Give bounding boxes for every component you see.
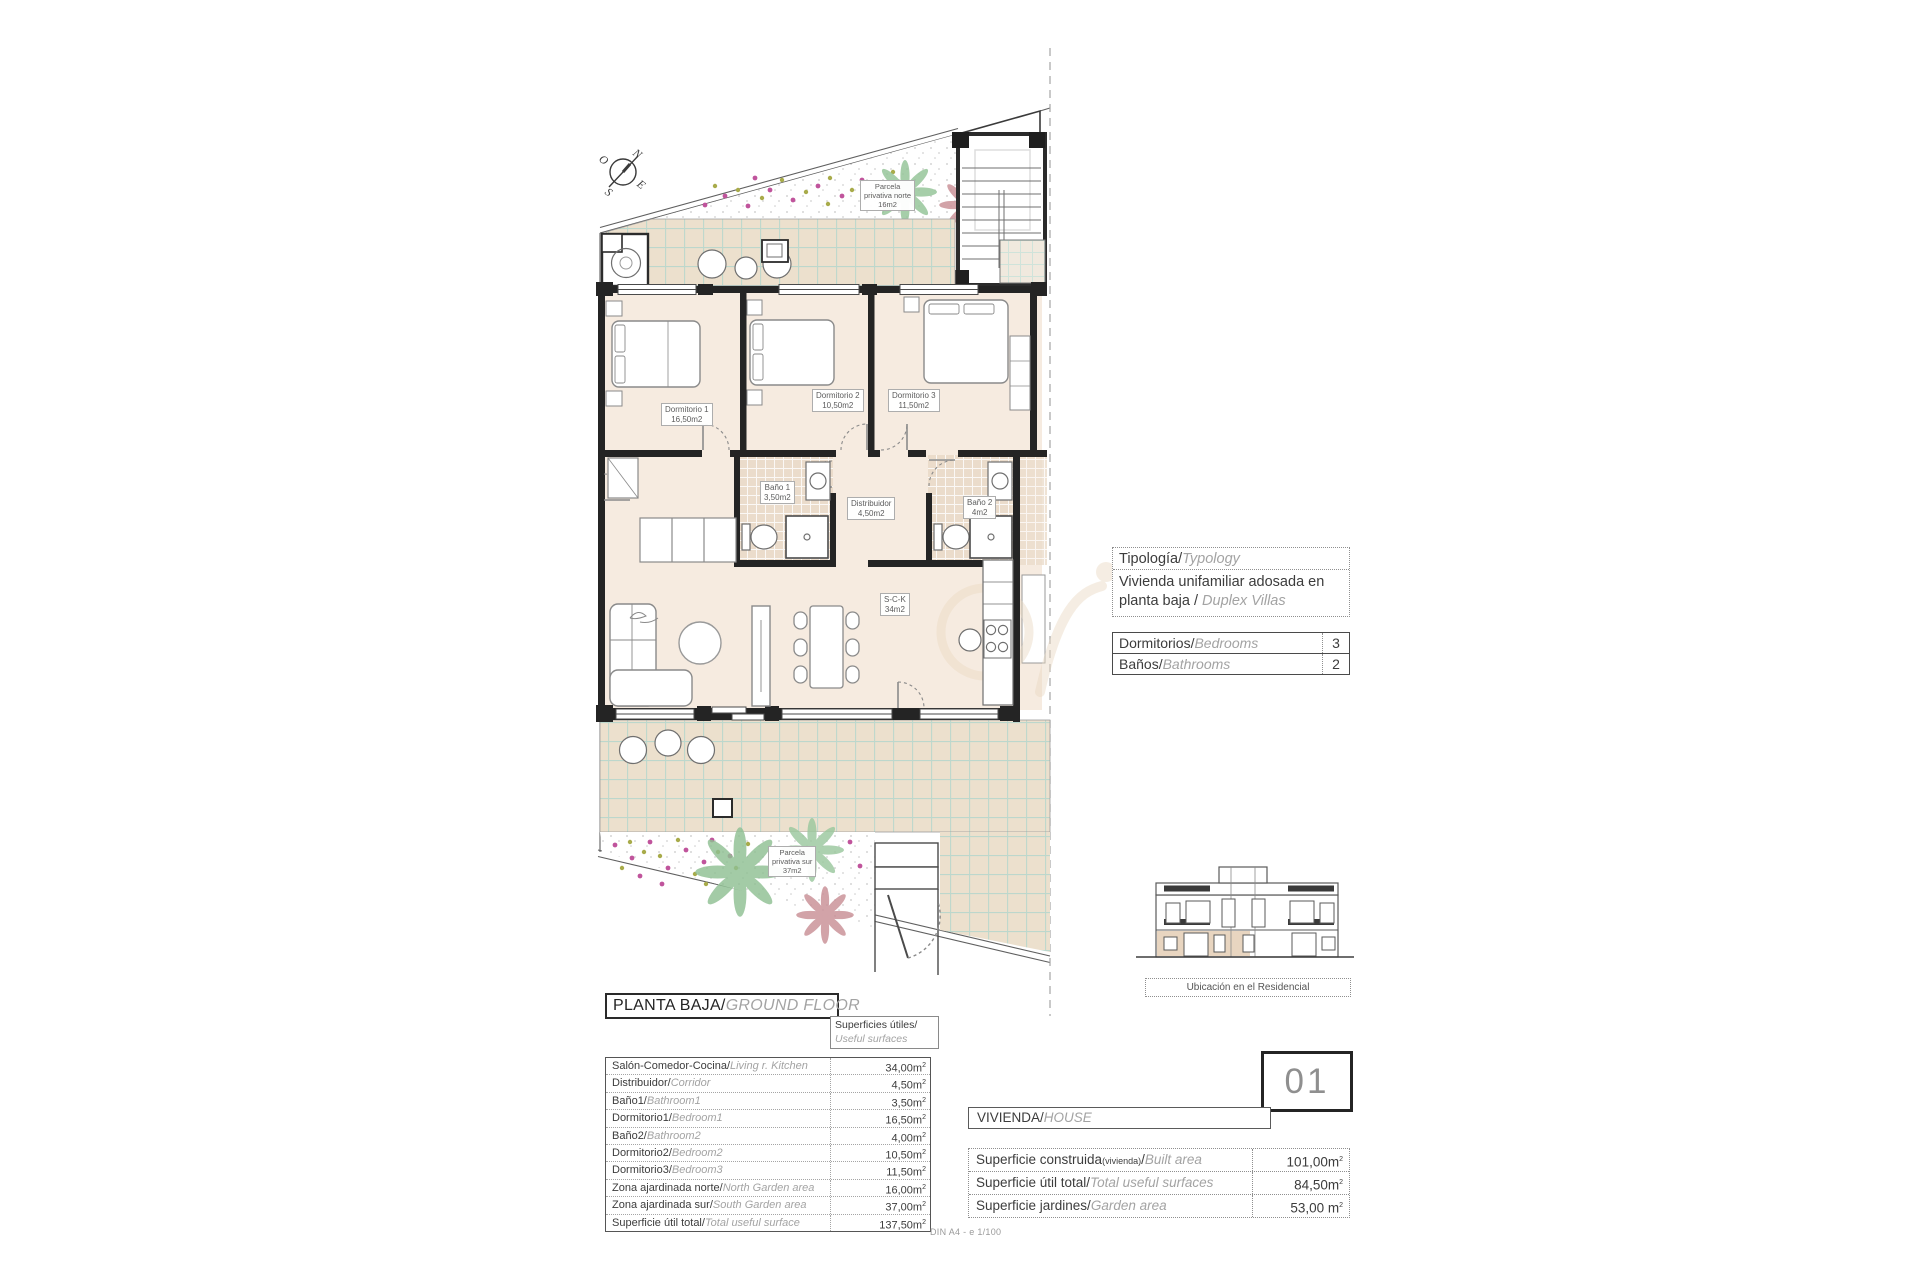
label-north-garden: Parcelaprivativa norte16m2 [860, 180, 915, 211]
label-bano2: Baño 24m2 [963, 496, 996, 519]
counts-row-bathrooms: Baños/Bathrooms 2 [1113, 653, 1349, 674]
label-dormitorio3: Dormitorio 311,50m2 [888, 389, 940, 412]
compass-rose [609, 156, 638, 187]
label-dormitorio1: Dormitorio 116,50m2 [661, 403, 713, 426]
label-south-garden: Parcelaprivativa sur37m2 [768, 846, 816, 877]
label-distribuidor: Distribuidor4,50m2 [847, 497, 895, 520]
table-row: Dormitorio1/Bedroom1 16,50m2 [606, 1109, 930, 1126]
bathrooms-count: 2 [1322, 654, 1349, 674]
floor-title: PLANTA BAJA/GROUND FLOOR [605, 993, 839, 1019]
terrace-utility-unit [602, 234, 648, 286]
table-row-built-area: Superficie construida(vivienda)/Built ar… [969, 1149, 1349, 1171]
table-row: Baño1/Bathroom1 3,50m2 [606, 1092, 930, 1109]
table-row: Distribuidor/Corridor 4,50m2 [606, 1074, 930, 1091]
counts-row-bedrooms: Dormitorios/Bedrooms 3 [1113, 633, 1349, 653]
table-row: Zona ajardinada sur/South Garden area 37… [606, 1196, 930, 1213]
table-row: Dormitorio2/Bedroom2 10,50m2 [606, 1144, 930, 1161]
neighbour-bath-strip [1020, 455, 1047, 565]
north-terrace [602, 219, 955, 286]
counts-table: Dormitorios/Bedrooms 3 Baños/Bathrooms 2 [1112, 632, 1350, 675]
typology-box: Tipología/Typology Vivienda unifamiliar … [1112, 547, 1350, 617]
unit-surfaces-table: Superficie construida(vivienda)/Built ar… [968, 1148, 1350, 1218]
dining-set [794, 606, 859, 688]
south-garden [600, 818, 875, 944]
residential-elevation [1136, 867, 1354, 957]
table-row: Dormitorio3/Bedroom3 11,50m2 [606, 1161, 930, 1178]
table-row-total: Superficie útil total/Total useful surfa… [606, 1214, 930, 1231]
window-bottom-2 [782, 709, 892, 719]
label-dormitorio2: Dormitorio 210,50m2 [812, 389, 864, 412]
typology-title: Tipología/Typology [1113, 548, 1349, 570]
table-row-garden-area: Superficie jardines/Garden area 53,00 m2 [969, 1194, 1349, 1217]
typology-body: Vivienda unifamiliar adosada en planta b… [1113, 570, 1349, 616]
window-top-3 [900, 285, 978, 295]
entry-gate [875, 843, 940, 975]
floor-plan-drawing: N E S O [0, 0, 1920, 1280]
useful-surfaces-header: Superficies útiles/ Useful surfaces [830, 1016, 939, 1049]
label-bano1: Baño 13,50m2 [760, 481, 795, 504]
table-row-useful-total: Superficie útil total/Total useful surfa… [969, 1171, 1349, 1194]
bedrooms-count: 3 [1322, 633, 1349, 653]
table-row: Baño2/Bathroom2 4,00m2 [606, 1127, 930, 1144]
useful-surfaces-table: Salón-Comedor-Cocina/Living r. Kitchen 3… [605, 1057, 931, 1232]
window-top-2 [779, 285, 859, 295]
label-sck: S-C-K34m2 [880, 593, 910, 616]
compass-w: O [596, 153, 610, 168]
sheet-scale-note: DIN A4 - e 1/100 [930, 1227, 1001, 1237]
window-bottom-1 [616, 709, 694, 719]
staircase [952, 111, 1045, 286]
table-row: Salón-Comedor-Cocina/Living r. Kitchen 3… [606, 1058, 930, 1074]
palm-tree [796, 886, 854, 944]
compass-n: N [630, 147, 645, 163]
table-row: Zona ajardinada norte/North Garden area … [606, 1179, 930, 1196]
window-top-1 [618, 285, 696, 295]
unit-number: 01 [1261, 1051, 1353, 1112]
compass-s: S [602, 186, 614, 199]
compass-e: E [634, 178, 648, 192]
location-caption: Ubicación en el Residencial [1145, 978, 1351, 997]
vivienda-header: VIVIENDA/HOUSE [968, 1107, 1271, 1129]
window-bottom-3 [920, 709, 998, 719]
